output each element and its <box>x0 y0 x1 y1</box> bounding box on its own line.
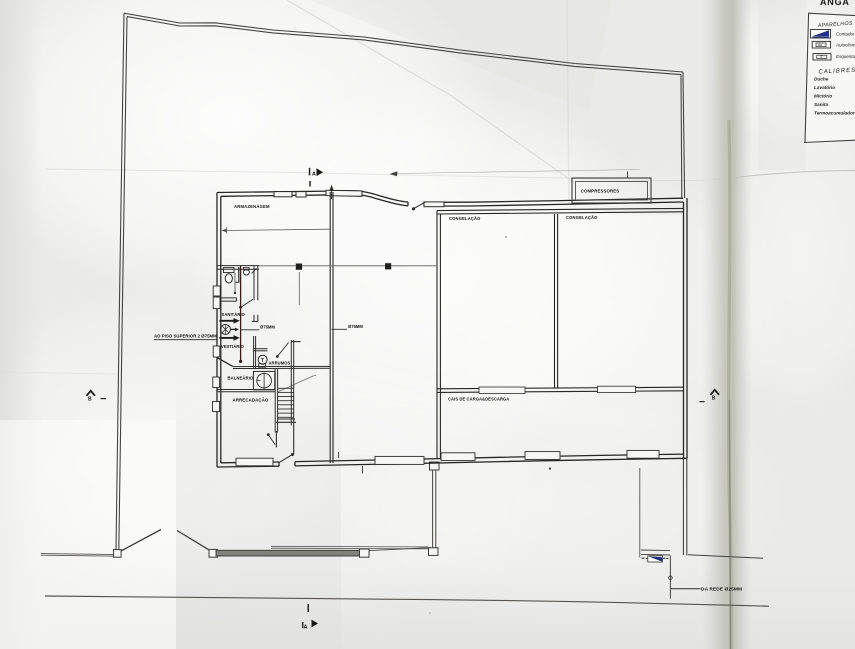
svg-text:VESTIÁRIO: VESTIÁRIO <box>221 344 245 349</box>
svg-text:BALNEÁRIO: BALNEÁRIO <box>228 375 254 380</box>
svg-text:SANITÁRIO: SANITÁRIO <box>222 312 246 317</box>
svg-text:ARMAZENAGEM: ARMAZENAGEM <box>234 204 270 209</box>
svg-text:Termoacumulador: Termoacumulador <box>814 110 855 115</box>
svg-text:Autoclismo: Autoclismo <box>835 42 855 47</box>
svg-text:ARRUMOS: ARRUMOS <box>269 360 291 365</box>
svg-text:AO PISO SUPERIOR 2 Ø75MM: AO PISO SUPERIOR 2 Ø75MM <box>154 334 217 339</box>
svg-text:DA REDE Ø25MM: DA REDE Ø25MM <box>701 587 742 593</box>
svg-text:ARRECADAÇÃO: ARRECADAÇÃO <box>233 397 269 402</box>
svg-text:COMPRESSORES: COMPRESSORES <box>581 188 620 193</box>
svg-text:CONGELAÇÃO: CONGELAÇÃO <box>566 215 598 220</box>
svg-text:Duche: Duche <box>814 77 829 82</box>
svg-text:T: T <box>261 358 264 364</box>
svg-text:Contador: Contador <box>836 32 855 37</box>
svg-text:Ø75MM: Ø75MM <box>260 324 275 329</box>
svg-text:Ø75MM: Ø75MM <box>348 324 363 329</box>
svg-text:B: B <box>712 396 716 402</box>
svg-text:A: A <box>304 625 308 631</box>
svg-text:Esquentad: Esquentad <box>836 54 855 59</box>
svg-text:Sanita: Sanita <box>814 102 828 107</box>
svg-text:A: A <box>312 171 316 177</box>
svg-text:Lavatório: Lavatório <box>814 85 835 90</box>
svg-text:B: B <box>88 396 92 402</box>
svg-text:CONGELAÇÃO: CONGELAÇÃO <box>449 216 481 221</box>
svg-text:CAIS DE CARGA&DESCARGA: CAIS DE CARGA&DESCARGA <box>448 396 509 401</box>
svg-text:Mictório: Mictório <box>814 94 832 99</box>
svg-text:ANGA: ANGA <box>820 0 850 7</box>
svg-text:Au: Au <box>818 43 822 47</box>
